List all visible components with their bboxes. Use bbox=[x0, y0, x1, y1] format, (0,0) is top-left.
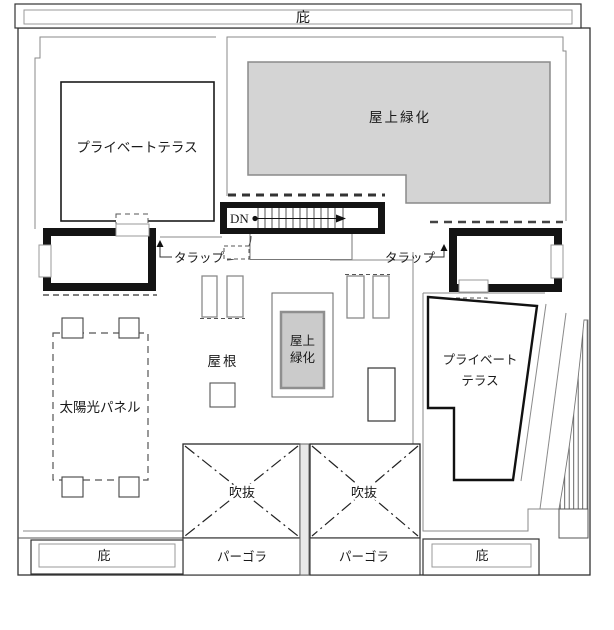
roof-label: 屋根 bbox=[208, 354, 239, 369]
pergola-right: パーゴラ bbox=[310, 538, 420, 575]
pergola-right-label: パーゴラ bbox=[339, 549, 389, 564]
ladder-callout-right: タラップ bbox=[385, 244, 448, 265]
void-right: 吹抜 bbox=[310, 444, 420, 538]
roof-equipment-rect bbox=[368, 368, 395, 421]
void-left: 吹抜 bbox=[183, 444, 300, 538]
green-roof-small: 屋上 緑化 bbox=[272, 293, 333, 397]
lower-right-terrace: プライベート テラス bbox=[428, 297, 588, 538]
right-penthouse-window-south bbox=[459, 280, 488, 292]
left-penthouse-window-west bbox=[39, 245, 51, 277]
solar-footing-1 bbox=[62, 318, 83, 338]
solar-panel-label: 太陽光パネル bbox=[60, 400, 141, 415]
solar-footing-2 bbox=[119, 318, 139, 338]
skylight-3 bbox=[347, 276, 364, 318]
skylight-2 bbox=[227, 276, 243, 317]
lower-right-terrace-line2: テラス bbox=[461, 374, 498, 388]
canopy-bottom-left: 庇 bbox=[31, 540, 183, 574]
stair-dashed-box bbox=[224, 246, 249, 259]
skylight-1 bbox=[202, 276, 217, 317]
terrace-hatched-band bbox=[559, 320, 588, 509]
canopy-top-label: 庇 bbox=[296, 10, 310, 26]
stair-landing-outline bbox=[250, 234, 352, 260]
roof-plan-drawing: 庇 屋上緑化 プライベートテラス DN bbox=[0, 0, 614, 630]
lower-right-terrace-line1: プライベート bbox=[442, 353, 517, 367]
left-penthouse bbox=[39, 224, 157, 295]
terrace-corner-box bbox=[559, 509, 588, 538]
upper-left-terrace-label: プライベートテラス bbox=[76, 140, 197, 155]
stair-dn-label: DN bbox=[230, 211, 249, 226]
ladder-right-arrow-icon bbox=[441, 244, 448, 251]
green-roof-small-line1: 屋上 bbox=[290, 334, 315, 348]
solar-footing-4 bbox=[119, 477, 139, 497]
canopy-bottom-right: 庇 bbox=[423, 539, 539, 575]
roof-plan-svg: 庇 屋上緑化 プライベートテラス DN bbox=[0, 0, 614, 630]
right-penthouse-window-east bbox=[551, 245, 563, 278]
void-right-label: 吹抜 bbox=[351, 485, 377, 500]
canopy-top: 庇 bbox=[15, 4, 581, 28]
terrace-parallel-line-2 bbox=[540, 313, 566, 509]
pergola-left: パーゴラ bbox=[183, 538, 300, 575]
ladder-callout-left: タラップ bbox=[157, 240, 225, 265]
roof-equipment-square bbox=[210, 383, 235, 407]
green-roof-large: 屋上緑化 bbox=[248, 62, 550, 203]
solar-panel-area: 太陽光パネル bbox=[53, 318, 148, 497]
ladder-left-label: タラップ bbox=[174, 251, 225, 265]
canopy-bottom-right-label: 庇 bbox=[475, 548, 488, 563]
left-penthouse-window-north bbox=[116, 224, 149, 236]
pergola-beam-divider bbox=[300, 444, 309, 575]
green-roof-small-line2: 緑化 bbox=[290, 350, 316, 365]
ladder-right-label: タラップ bbox=[385, 251, 436, 265]
solar-footing-3 bbox=[62, 477, 83, 497]
skylight-4 bbox=[373, 276, 389, 318]
ladder-left-arrow-icon bbox=[157, 240, 164, 247]
canopy-bottom-left-label: 庇 bbox=[97, 548, 110, 563]
stair-block: DN bbox=[220, 202, 385, 234]
upper-left-terrace: プライベートテラス bbox=[61, 82, 214, 229]
green-roof-large-label: 屋上緑化 bbox=[369, 110, 431, 125]
void-left-label: 吹抜 bbox=[229, 485, 255, 500]
pergola-left-label: パーゴラ bbox=[217, 549, 267, 564]
